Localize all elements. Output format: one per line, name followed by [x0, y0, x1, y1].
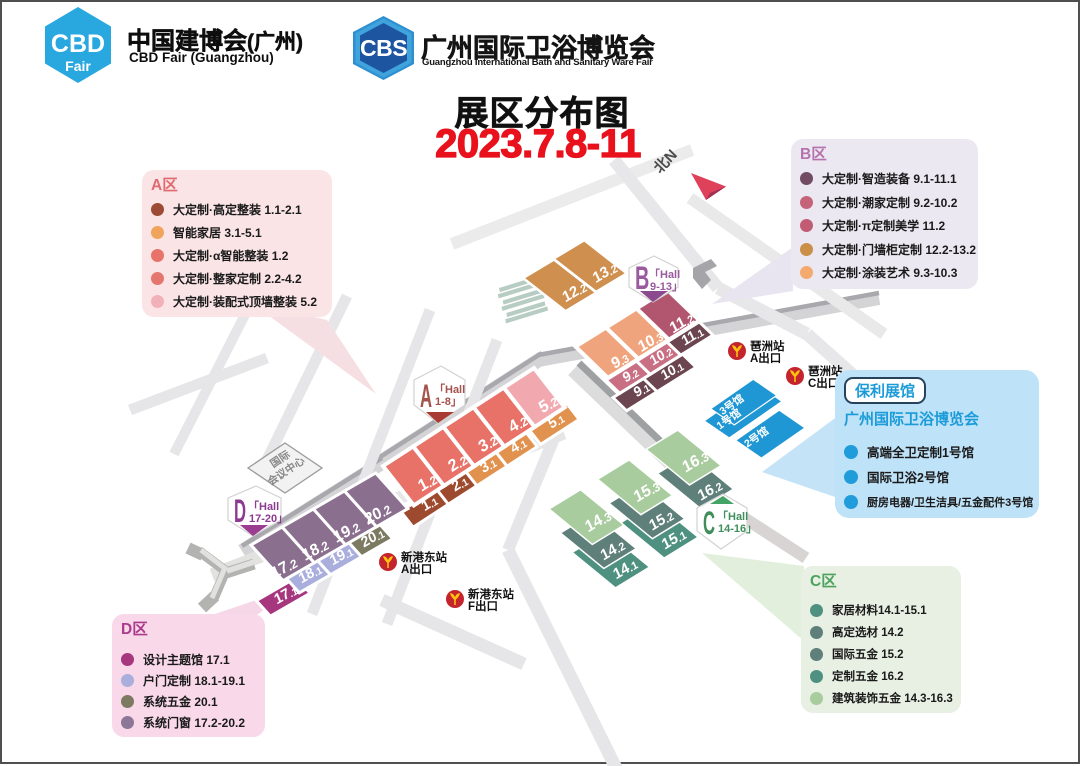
- svg-text:新港东站: 新港东站: [468, 587, 514, 601]
- svg-text:C: C: [703, 506, 715, 541]
- svg-text:CBD: CBD: [51, 30, 105, 58]
- svg-text:A出口: A出口: [401, 562, 432, 576]
- svg-text:1-8」: 1-8」: [435, 396, 462, 408]
- svg-text:「Hall: 「Hall: [717, 509, 748, 523]
- svg-text:B: B: [635, 260, 649, 296]
- svg-text:「Hall: 「Hall: [248, 499, 279, 513]
- svg-text:A: A: [420, 379, 432, 414]
- svg-text:「Hall: 「Hall: [434, 382, 465, 396]
- svg-text:A出口: A出口: [750, 351, 781, 365]
- svg-text:14-16」: 14-16」: [718, 523, 757, 535]
- svg-text:CBS: CBS: [360, 35, 407, 61]
- svg-text:「Hall: 「Hall: [649, 267, 680, 281]
- svg-text:D: D: [234, 494, 246, 529]
- svg-text:9-13」: 9-13」: [650, 281, 683, 293]
- svg-text:Fair: Fair: [65, 58, 91, 74]
- svg-text:F出口: F出口: [468, 599, 498, 613]
- svg-text:17-20」: 17-20」: [249, 513, 288, 525]
- svg-text:琶洲站: 琶洲站: [750, 339, 785, 353]
- svg-text:新港东站: 新港东站: [401, 550, 447, 564]
